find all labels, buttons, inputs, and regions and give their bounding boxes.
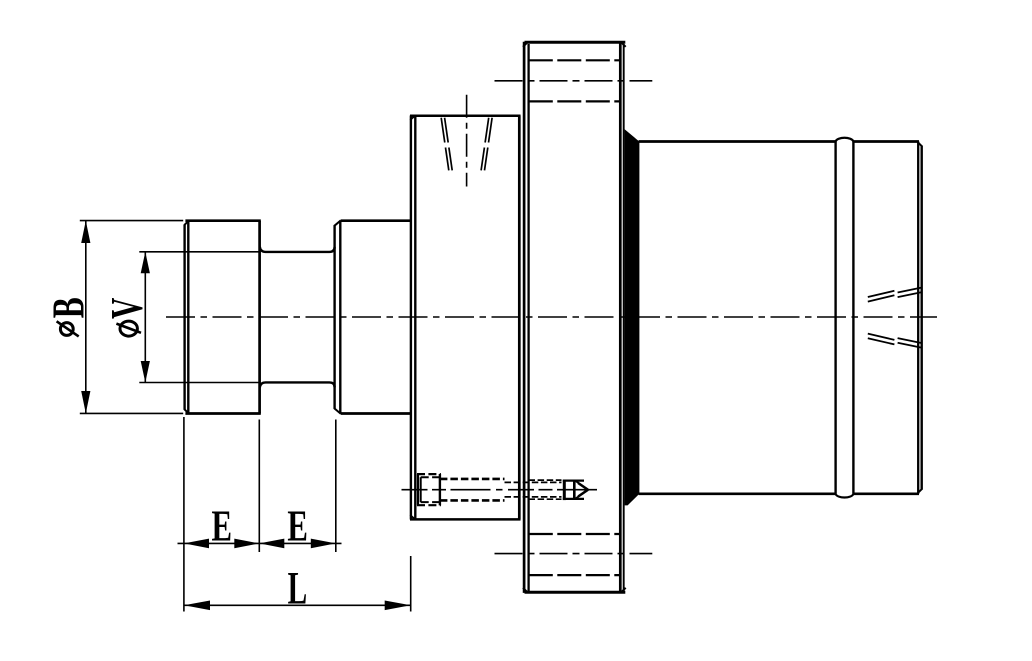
svg-text:L: L — [288, 563, 308, 614]
svg-text:B: B — [44, 297, 94, 318]
svg-text:E: E — [287, 502, 308, 551]
svg-text:E: E — [212, 502, 233, 551]
svg-text:V: V — [103, 297, 153, 319]
